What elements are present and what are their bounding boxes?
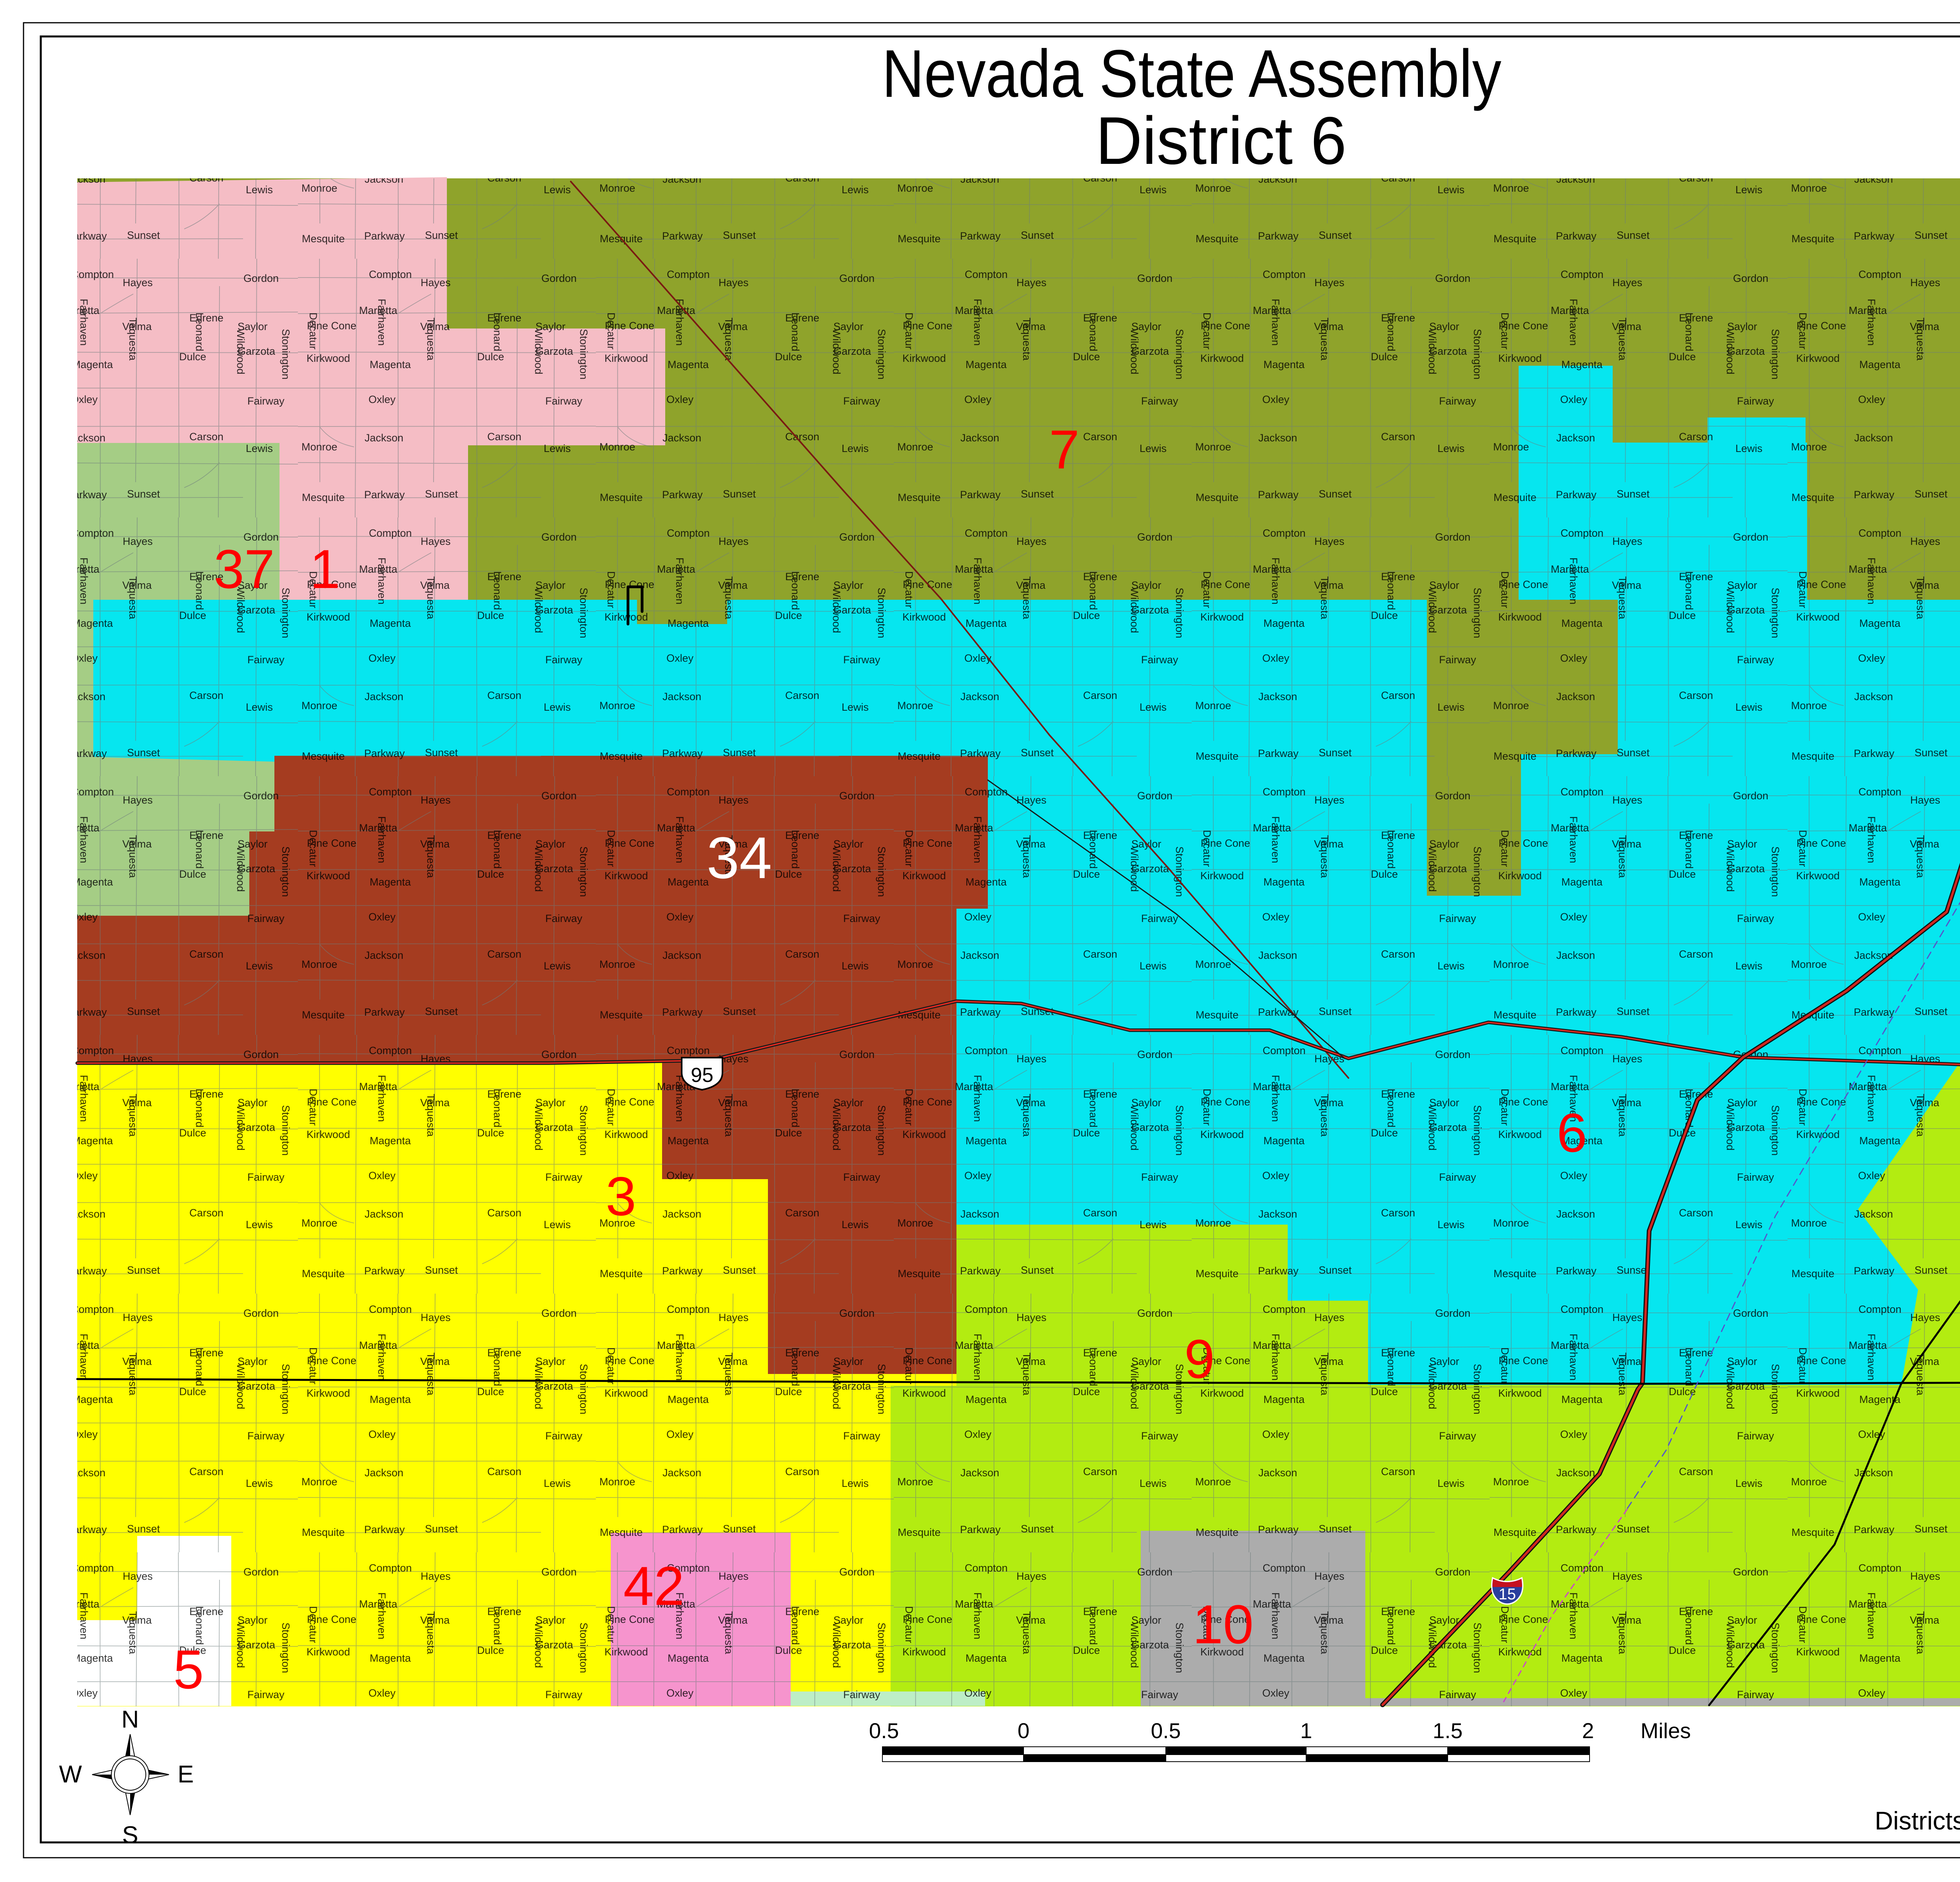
svg-text:3: 3 [606, 1165, 636, 1227]
svg-text:10: 10 [1192, 1593, 1254, 1655]
svg-text:2: 2 [1582, 1719, 1594, 1743]
svg-text:1: 1 [310, 538, 340, 600]
svg-text:95: 95 [691, 1064, 713, 1087]
svg-text:Miles: Miles [1641, 1719, 1691, 1743]
svg-text:34: 34 [707, 825, 772, 891]
svg-text:5: 5 [173, 1639, 204, 1700]
svg-text:42: 42 [623, 1555, 684, 1617]
svg-text:N: N [122, 1706, 139, 1733]
svg-text:Districts are effective on Oct: Districts are effective on October 1, 20… [1875, 1806, 1960, 1835]
svg-text:7: 7 [1049, 419, 1080, 480]
svg-text:37: 37 [214, 538, 275, 600]
svg-text:1.5: 1.5 [1433, 1719, 1463, 1743]
svg-text:0.5: 0.5 [1151, 1719, 1181, 1743]
svg-text:District 6: District 6 [1096, 103, 1347, 178]
svg-text:9: 9 [1184, 1328, 1215, 1390]
svg-text:E: E [178, 1761, 194, 1788]
svg-text:15: 15 [1499, 1586, 1516, 1603]
svg-text:S: S [122, 1822, 138, 1849]
svg-text:1: 1 [1300, 1719, 1312, 1743]
svg-text:Nevada State Assembly: Nevada State Assembly [882, 36, 1501, 111]
svg-text:0.5: 0.5 [869, 1719, 899, 1743]
svg-text:6: 6 [1557, 1102, 1587, 1163]
svg-text:0: 0 [1018, 1719, 1030, 1743]
svg-text:W: W [59, 1761, 82, 1788]
